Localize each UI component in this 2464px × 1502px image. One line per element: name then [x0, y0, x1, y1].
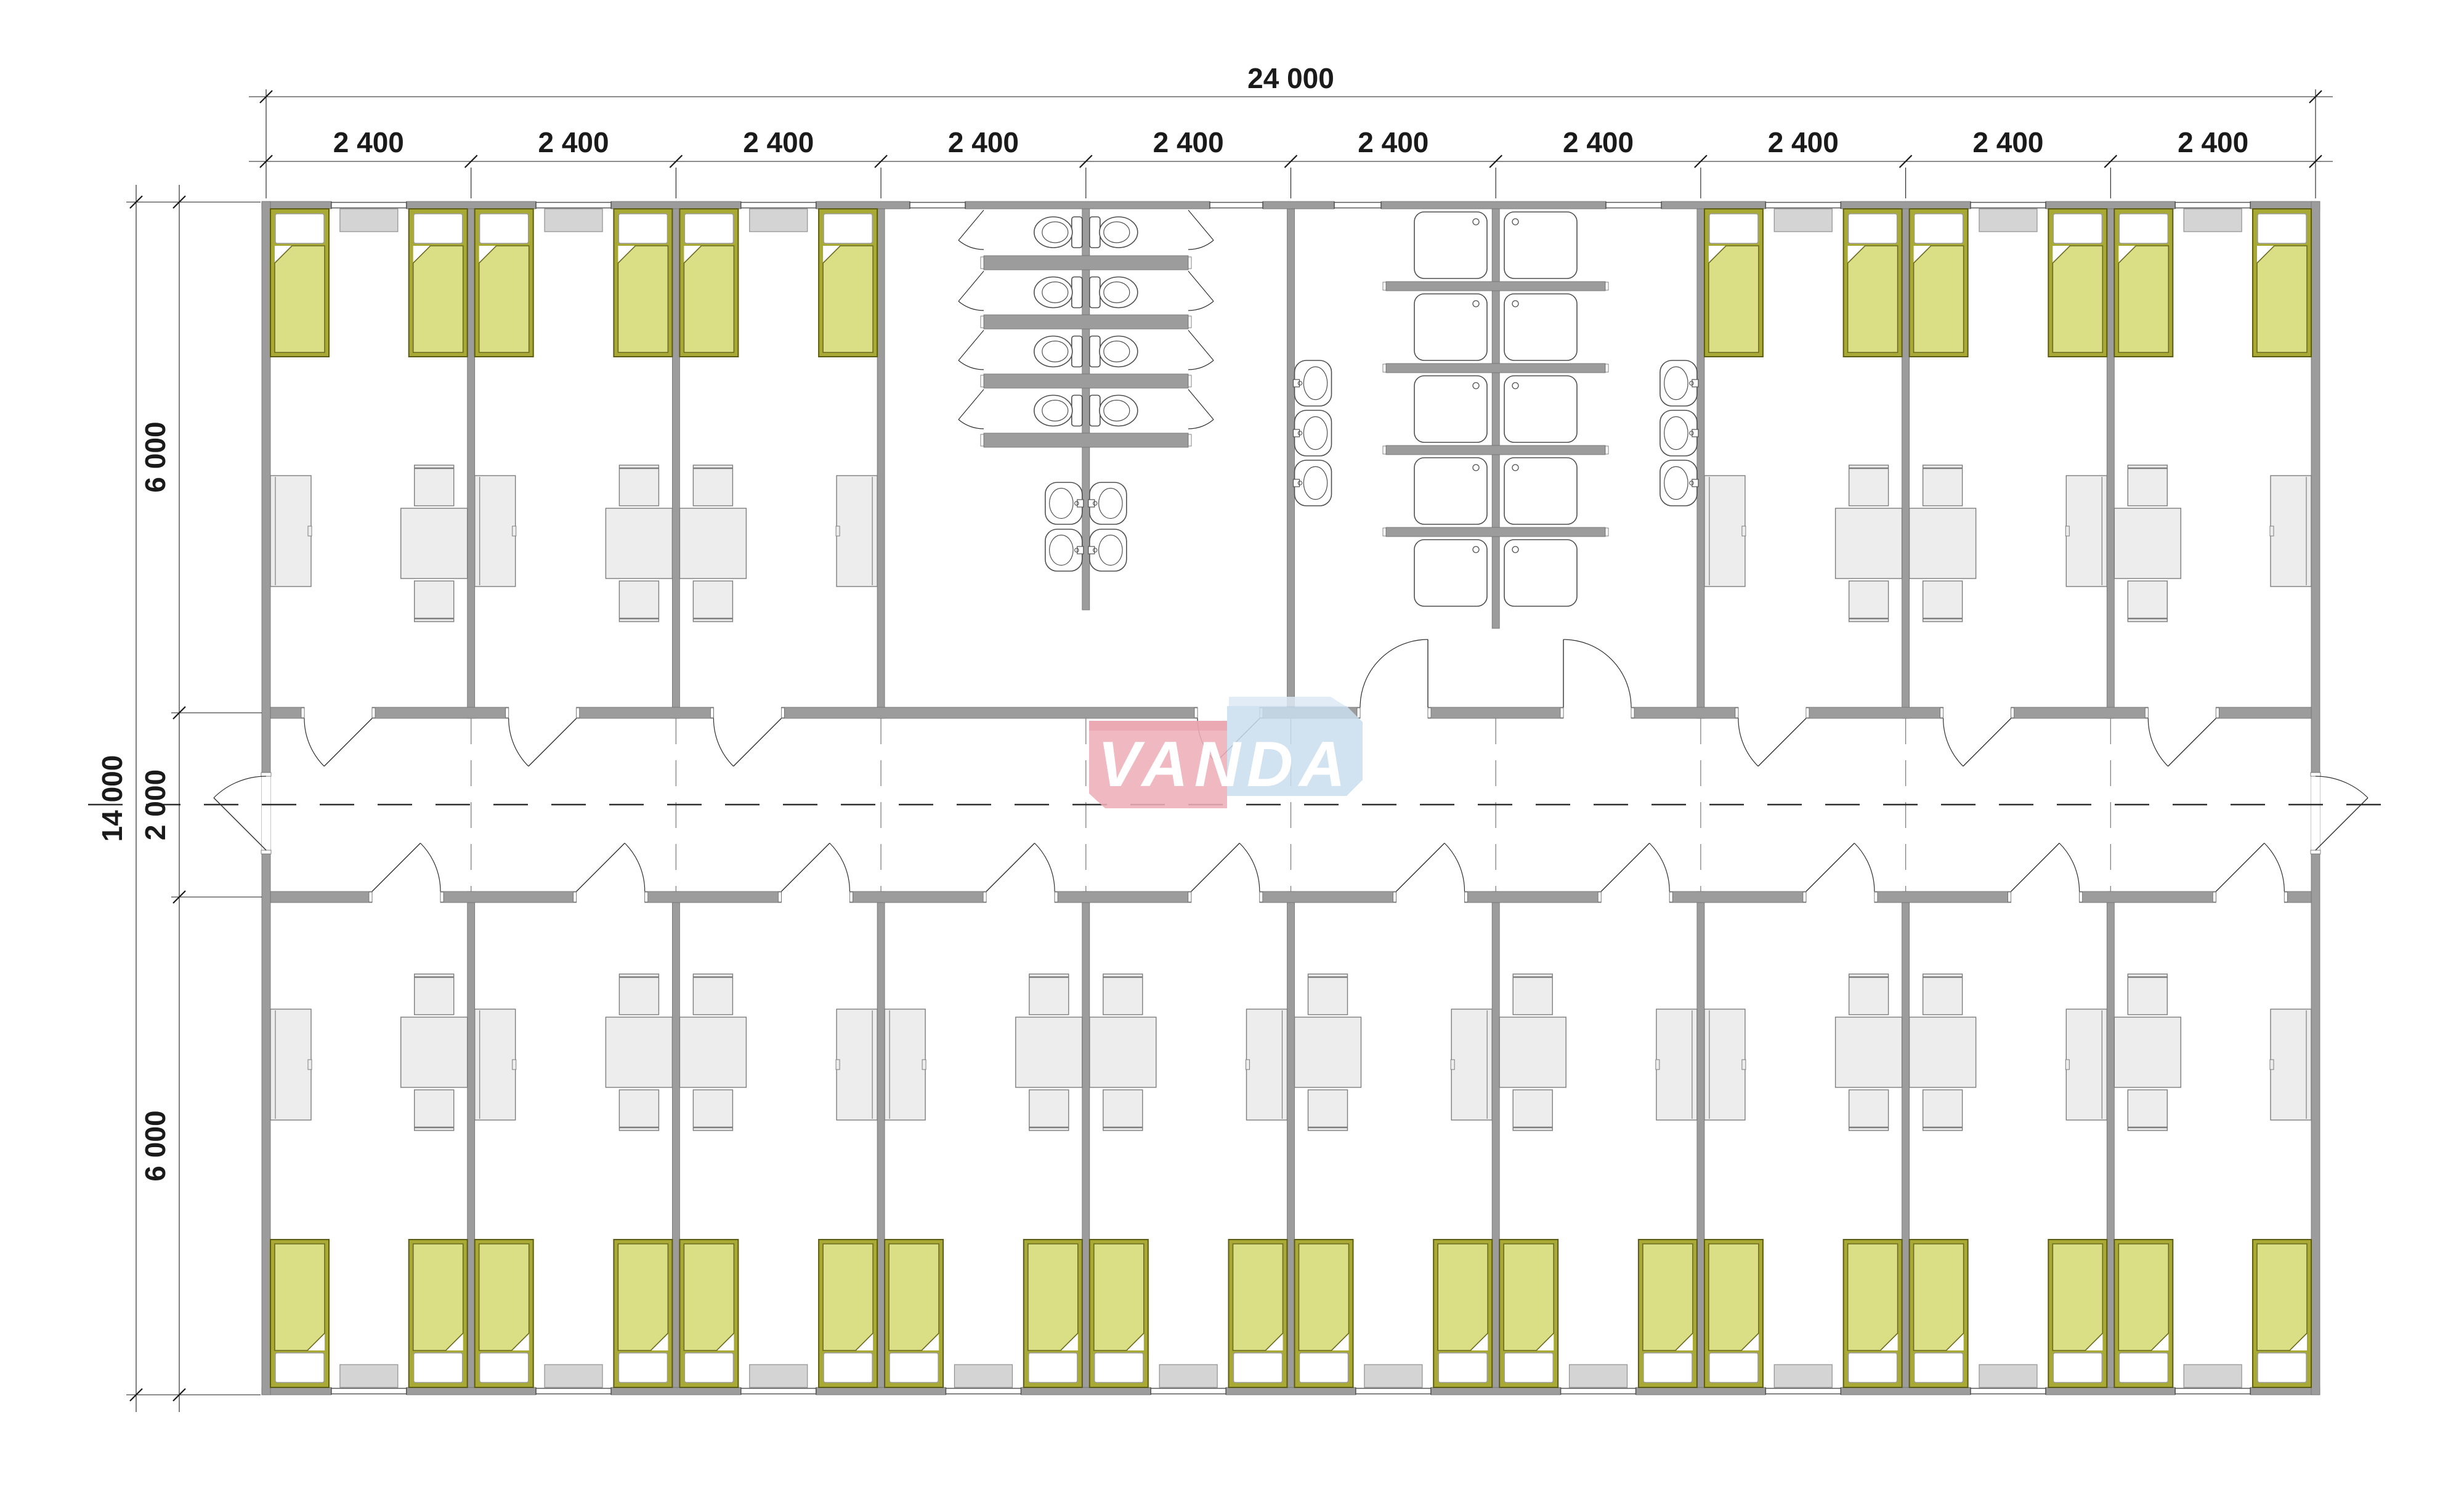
wardrobe — [2270, 476, 2311, 587]
corridor-wall-bottom — [440, 891, 577, 903]
floor-plan-drawing: VANDA24 0002 4002 4002 4002 4002 4002 40… — [0, 0, 2464, 1502]
dining-table — [2114, 1017, 2181, 1087]
bed — [614, 209, 672, 357]
door-jamb — [2011, 708, 2014, 718]
chair-seat — [1849, 465, 1889, 506]
stall-door-leaf — [1188, 210, 1214, 240]
washbasin — [1660, 460, 1698, 506]
blanket — [479, 1244, 529, 1350]
chair-seat — [415, 1090, 454, 1131]
vanda-logo-text: VANDA — [1098, 729, 1352, 800]
pillow — [275, 1353, 324, 1382]
corridor-wall-top — [372, 707, 509, 718]
chair — [1029, 974, 1069, 1015]
partition-bottom-band — [1492, 891, 1499, 1387]
shower-jamb — [1383, 528, 1386, 536]
window-sill — [1774, 209, 1832, 232]
wardrobe-body — [837, 476, 877, 587]
chair-seat — [1923, 581, 1963, 622]
wardrobe-body — [2271, 1009, 2311, 1120]
stall-door-leaf — [1188, 389, 1214, 420]
chair — [693, 465, 732, 506]
wardrobe-handle — [922, 1060, 926, 1070]
pillow — [1643, 1353, 1692, 1382]
wardrobe-handle — [1742, 1060, 1746, 1070]
door-swing — [1738, 718, 1758, 766]
chair-seat — [1103, 1090, 1143, 1131]
wardrobe-body — [1656, 1009, 1697, 1120]
pillow — [1915, 1353, 1963, 1382]
dining-table — [679, 508, 746, 578]
wardrobe-body — [837, 1009, 877, 1120]
wardrobe — [836, 1009, 877, 1120]
dining-table — [401, 508, 468, 578]
door-jamb — [1803, 892, 1806, 902]
stall-jamb — [1188, 375, 1191, 387]
partition-top-band — [2107, 209, 2114, 718]
stall-door-leaf — [958, 389, 984, 420]
wardrobe-handle — [2270, 1060, 2274, 1070]
door-jamb — [2080, 892, 2083, 902]
shower-tray — [1504, 458, 1577, 524]
blanket — [479, 246, 529, 352]
toilet-bowl — [1100, 277, 1138, 308]
wardrobe — [2065, 476, 2107, 587]
corridor-wall-bottom — [2284, 891, 2311, 903]
dining-table — [679, 1017, 746, 1087]
shower-partition — [1386, 527, 1605, 537]
door-swing — [304, 718, 324, 766]
door-jamb — [2213, 892, 2216, 902]
toilet-tank — [1090, 336, 1100, 367]
door-jamb — [1806, 708, 1809, 718]
pillow — [1915, 214, 1963, 243]
stall-door-swing — [1188, 301, 1214, 311]
blanket — [1438, 1244, 1488, 1350]
corridor-wall-bottom — [849, 891, 986, 903]
washbasin — [1088, 529, 1127, 571]
bed — [409, 1240, 468, 1387]
door-swing — [1239, 843, 1260, 891]
toilet — [1034, 396, 1082, 426]
toilet — [1090, 217, 1138, 248]
wardrobe-body — [1451, 1009, 1492, 1120]
door-jamb — [1357, 708, 1360, 718]
chair-seat — [1029, 1090, 1069, 1131]
washbasin — [1660, 360, 1698, 406]
door-swing — [830, 843, 850, 891]
corridor-wall-bottom — [645, 891, 782, 903]
wardrobe — [270, 476, 312, 587]
bed — [2253, 209, 2311, 357]
basin-tap — [1088, 500, 1095, 507]
chair-seat — [619, 1090, 659, 1131]
door-jamb — [577, 708, 580, 718]
door-jamb — [778, 892, 781, 902]
wardrobe-handle — [1656, 1060, 1660, 1070]
toilet-stall-partition — [984, 256, 1188, 270]
stall-jamb — [1188, 257, 1191, 269]
dimension-label: 2 400 — [333, 126, 404, 158]
dimension-label: 6 000 — [139, 421, 171, 492]
door-leaf — [1806, 843, 1854, 891]
door-jamb — [2311, 850, 2320, 854]
wardrobe-body — [1247, 1009, 1287, 1120]
door-jamb — [369, 892, 372, 902]
shower-jamb — [1383, 364, 1386, 372]
window-sill — [750, 1365, 808, 1387]
exterior-door-opening — [262, 776, 270, 850]
pillow — [2258, 1353, 2306, 1382]
chair — [2128, 465, 2167, 506]
dimension-label: 14 000 — [96, 755, 128, 842]
corridor-wall-top — [2011, 707, 2149, 718]
pillow — [480, 214, 529, 243]
chair — [619, 974, 659, 1015]
stall-jamb — [981, 257, 984, 269]
blanket — [2257, 1244, 2307, 1350]
basin-tap — [1077, 546, 1084, 554]
toilet-stall-partition — [984, 433, 1188, 447]
dimension-label: 2 400 — [538, 126, 609, 158]
bed — [819, 1240, 877, 1387]
door-leaf — [734, 718, 782, 766]
basin-tap — [1692, 429, 1698, 437]
partition-bottom-band — [1287, 891, 1295, 1387]
chair-seat — [1923, 465, 1963, 506]
dimension-label: 2 400 — [743, 126, 814, 158]
blanket — [413, 1244, 463, 1350]
toilet — [1034, 217, 1082, 248]
blanket — [889, 1244, 939, 1350]
chair — [1923, 465, 1963, 506]
corridor-wall-top — [1806, 707, 1943, 718]
shower-tray — [1414, 294, 1487, 360]
chair-seat — [2128, 1090, 2167, 1131]
wardrobe — [1704, 1009, 1746, 1120]
partition-bottom-band — [468, 891, 475, 1387]
chair — [415, 974, 454, 1015]
corridor-wall-top — [781, 707, 1198, 718]
window-sill — [2184, 1365, 2242, 1387]
bed — [475, 209, 533, 357]
bed — [1910, 1240, 1968, 1387]
basin-tap — [1692, 479, 1698, 487]
wardrobe-body — [475, 1009, 516, 1120]
door-swing — [713, 718, 733, 766]
wardrobe — [1656, 1009, 1697, 1120]
shower-jamb — [1605, 282, 1608, 290]
blanket — [1848, 1244, 1898, 1350]
wardrobe — [836, 476, 877, 587]
door-jamb — [1735, 708, 1738, 718]
blanket — [1233, 1244, 1283, 1350]
window-sill — [1979, 209, 2037, 232]
door-swing — [1943, 718, 1963, 766]
door-jamb — [261, 850, 271, 854]
door-jamb — [1194, 708, 1198, 718]
door-jamb — [983, 892, 986, 902]
door-jamb — [372, 708, 375, 718]
pillow — [2119, 1353, 2168, 1382]
blanket — [1299, 1244, 1349, 1350]
vanda-logo-blue-flap — [1229, 697, 1345, 706]
wardrobe-body — [475, 476, 516, 587]
chair — [693, 974, 732, 1015]
wardrobe-handle — [836, 526, 840, 536]
partition-bottom-band — [1902, 891, 1910, 1387]
blanket — [2118, 246, 2168, 352]
chair — [2128, 581, 2167, 622]
bed — [270, 209, 329, 357]
wardrobe — [475, 476, 516, 587]
chair-seat — [1308, 974, 1348, 1015]
partition-top-band — [1287, 209, 1295, 718]
door-jamb — [1560, 708, 1563, 718]
chair — [415, 1090, 454, 1131]
door-swing — [1035, 843, 1055, 891]
pillow — [618, 1353, 667, 1382]
door-leaf — [214, 798, 266, 850]
corridor-wall-bottom — [1260, 891, 1396, 903]
toilet-bowl — [1034, 217, 1072, 248]
wardrobe — [1704, 476, 1746, 587]
door-swing — [1650, 843, 1670, 891]
shower-partition — [1386, 445, 1605, 455]
blanket — [2053, 246, 2102, 352]
wardrobe-body — [885, 1009, 925, 1120]
dining-table — [401, 1017, 468, 1087]
door-swing — [214, 776, 266, 798]
dining-table — [2114, 508, 2181, 578]
door-swing — [1360, 639, 1428, 707]
bed — [1295, 1240, 1353, 1387]
shower-tray — [1504, 212, 1577, 278]
window-sill — [1159, 1365, 1217, 1387]
window-sill — [954, 1365, 1012, 1387]
dining-table — [1910, 1017, 1976, 1087]
partition-top-band — [1902, 209, 1910, 718]
shower-jamb — [1605, 528, 1608, 536]
partition-bottom-band — [877, 891, 885, 1387]
chair — [1103, 1090, 1143, 1131]
wardrobe-handle — [836, 1060, 840, 1070]
door-leaf — [324, 718, 372, 766]
shower-jamb — [1383, 446, 1386, 454]
shower-tray — [1504, 376, 1577, 442]
pillow — [618, 214, 667, 243]
door-leaf — [2316, 798, 2368, 850]
pillow — [890, 1353, 938, 1382]
toilet-bowl — [1100, 336, 1138, 367]
door-jamb — [1874, 892, 1878, 902]
bed — [1499, 1240, 1558, 1387]
partition-top-band — [468, 209, 475, 718]
chair — [1308, 974, 1348, 1015]
door-jamb — [1669, 892, 1672, 902]
bed — [1024, 1240, 1082, 1387]
wardrobe-handle — [1451, 1060, 1454, 1070]
toilet-bowl — [1034, 396, 1072, 426]
chair — [2128, 974, 2167, 1015]
chair-seat — [2128, 581, 2167, 622]
basin-tap — [1294, 429, 1300, 437]
door-jamb — [1393, 892, 1396, 902]
stall-door-swing — [958, 360, 984, 370]
door-leaf — [781, 843, 829, 891]
toilet-tank — [1072, 336, 1082, 367]
shower-tray — [1414, 458, 1487, 524]
chair — [1513, 974, 1552, 1015]
corridor-wall-top — [1428, 707, 1563, 718]
chair-seat — [415, 465, 454, 506]
shower-tray — [1504, 540, 1577, 606]
door-jamb — [1055, 892, 1058, 902]
door-swing — [625, 843, 645, 891]
exterior-door-opening — [2311, 776, 2320, 850]
toilet — [1034, 277, 1082, 308]
shower-tray — [1414, 212, 1487, 278]
window-sill — [750, 209, 808, 232]
pillow — [1504, 1353, 1553, 1382]
wardrobe-body — [270, 476, 311, 587]
floor-plan-page: VANDA24 0002 4002 4002 4002 4002 4002 40… — [0, 0, 2464, 1502]
blanket — [684, 1244, 734, 1350]
dimension-label: 2 400 — [948, 126, 1019, 158]
pillow — [414, 1353, 463, 1382]
blanket — [1709, 246, 1759, 352]
door-leaf — [1601, 843, 1649, 891]
blanket — [2118, 1244, 2168, 1350]
pillow — [1709, 214, 1758, 243]
dining-table — [1910, 508, 1976, 578]
stall-door-leaf — [1188, 330, 1214, 360]
wardrobe-handle — [2065, 526, 2069, 536]
wardrobe — [1451, 1009, 1492, 1120]
chair-seat — [415, 974, 454, 1015]
dimension-label: 2 400 — [1972, 126, 2043, 158]
door-jamb — [1465, 892, 1468, 902]
door-swing — [2264, 843, 2285, 891]
toilet-bowl — [1034, 277, 1072, 308]
dimension-label: 2 400 — [1563, 126, 1634, 158]
chair-seat — [2128, 974, 2167, 1015]
stall-door-swing — [1188, 240, 1214, 250]
bed — [2114, 1240, 2173, 1387]
wardrobe-handle — [513, 1060, 516, 1070]
fixtures — [958, 209, 1698, 628]
bed — [1844, 1240, 1902, 1387]
blanket — [684, 246, 734, 352]
chair-seat — [1923, 974, 1963, 1015]
door-jamb — [1260, 892, 1263, 902]
stall-jamb — [981, 434, 984, 446]
corridor-wall-top — [270, 707, 304, 718]
basin-tap — [1294, 380, 1300, 387]
door-leaf — [1963, 718, 2011, 766]
window-sill — [2184, 209, 2242, 232]
bed — [475, 1240, 533, 1387]
chair-seat — [693, 465, 732, 506]
corridor-wall-bottom — [1669, 891, 1806, 903]
dining-table — [1295, 1017, 1361, 1087]
shower-partition — [1386, 363, 1605, 373]
chair — [1029, 1090, 1069, 1131]
washbasin — [1294, 460, 1332, 506]
chair — [693, 581, 732, 622]
toilet-tank — [1090, 396, 1100, 426]
pillow — [1095, 1353, 1143, 1382]
partition-top-band — [877, 209, 885, 718]
toilet-bowl — [1100, 217, 1138, 248]
dining-table — [1836, 508, 1902, 578]
shower-jamb — [1383, 282, 1386, 290]
dining-table — [606, 1017, 672, 1087]
door-jamb — [440, 892, 444, 902]
washbasin — [1045, 529, 1084, 571]
bed — [679, 209, 738, 357]
chair — [1923, 581, 1963, 622]
stall-jamb — [981, 316, 984, 328]
blanket — [1848, 246, 1898, 352]
toilet-tank — [1090, 277, 1100, 308]
window-sill — [1570, 1365, 1627, 1387]
pillow — [1438, 1353, 1487, 1382]
window-sill — [545, 1365, 602, 1387]
corridor-wall-top — [1631, 707, 1738, 718]
chair — [1849, 1090, 1889, 1131]
wardrobe-body — [2271, 476, 2311, 587]
door-jamb — [1631, 708, 1634, 718]
door-swing — [2059, 843, 2080, 891]
shower-jamb — [1605, 364, 1608, 372]
stall-door-swing — [958, 240, 984, 250]
door-jamb — [1940, 708, 1943, 718]
stall-door-leaf — [958, 271, 984, 301]
chair — [1923, 1090, 1963, 1131]
blanket — [1914, 246, 1964, 352]
wardrobe — [2270, 1009, 2311, 1120]
bed — [2048, 209, 2107, 357]
dining-table — [1499, 1017, 1566, 1087]
chair-seat — [693, 1090, 732, 1131]
stall-jamb — [1188, 434, 1191, 446]
chair — [619, 1090, 659, 1131]
stall-door-leaf — [958, 210, 984, 240]
wardrobe — [2065, 1009, 2107, 1120]
window-sill — [340, 209, 398, 232]
chair — [693, 1090, 732, 1131]
chair — [1849, 465, 1889, 506]
wardrobe-handle — [308, 1060, 312, 1070]
wardrobe-body — [2066, 476, 2107, 587]
dining-table — [606, 508, 672, 578]
bed — [1229, 1240, 1287, 1387]
bed — [1639, 1240, 1697, 1387]
basin-tap — [1077, 500, 1084, 507]
corridor-wall-bottom — [270, 891, 372, 903]
pillow — [684, 1353, 733, 1382]
corridor-wall-bottom — [1055, 891, 1191, 903]
shower-tray — [1414, 540, 1487, 606]
chair — [1923, 974, 1963, 1015]
chair-seat — [1513, 974, 1552, 1015]
toilet — [1090, 277, 1138, 308]
chair — [415, 465, 454, 506]
bed — [2253, 1240, 2311, 1387]
dimension-label: 2 400 — [1153, 126, 1224, 158]
door-leaf — [372, 843, 420, 891]
